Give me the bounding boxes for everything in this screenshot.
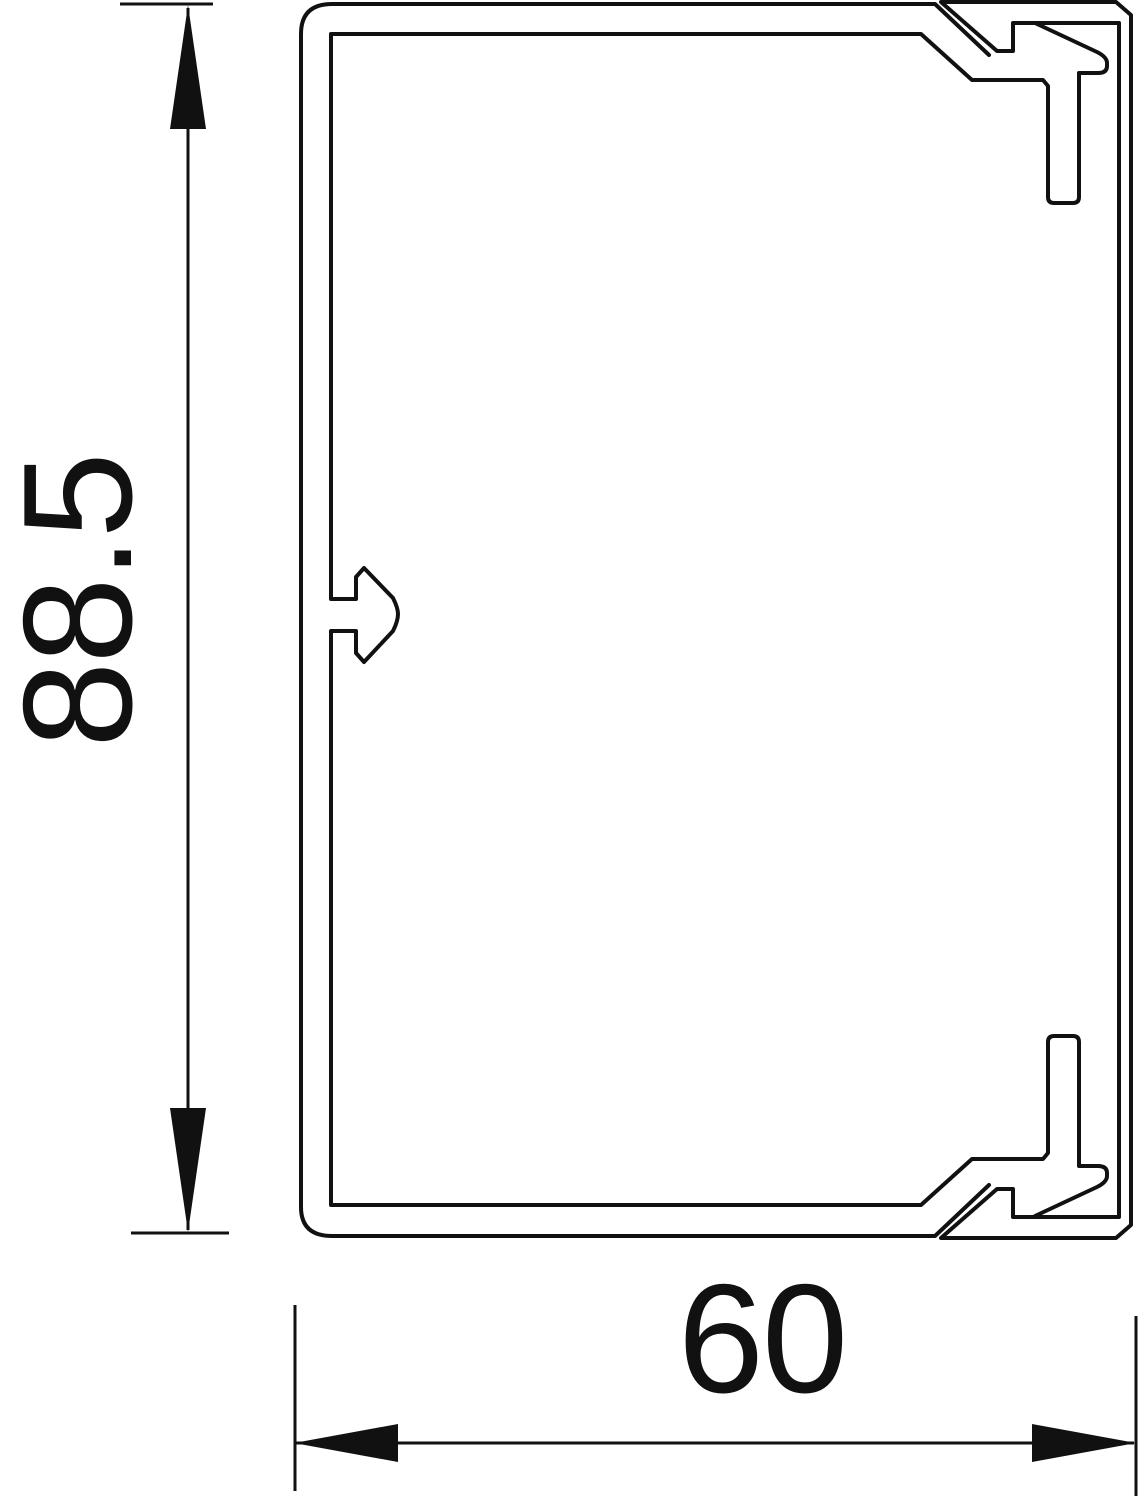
duct-inner-contour <box>331 23 1107 1216</box>
duct-base-outer-outline <box>301 4 989 1236</box>
duct-lid-outline <box>941 2 1131 1238</box>
arrowhead-up-icon <box>170 5 206 129</box>
height-dimension: 88.5 <box>0 4 229 1233</box>
width-dimension: 60 <box>294 1252 1136 1496</box>
width-dimension-label: 60 <box>678 1252 846 1425</box>
duct-profile <box>301 2 1131 1238</box>
technical-drawing-canvas: 88.5 60 <box>0 0 1139 1500</box>
arrowhead-down-icon <box>170 1108 206 1232</box>
arrowhead-right-icon <box>1032 1424 1136 1462</box>
duct-cross-section-drawing: 88.5 60 <box>0 0 1139 1500</box>
arrowhead-left-icon <box>294 1424 398 1462</box>
height-dimension-label: 88.5 <box>0 454 164 748</box>
